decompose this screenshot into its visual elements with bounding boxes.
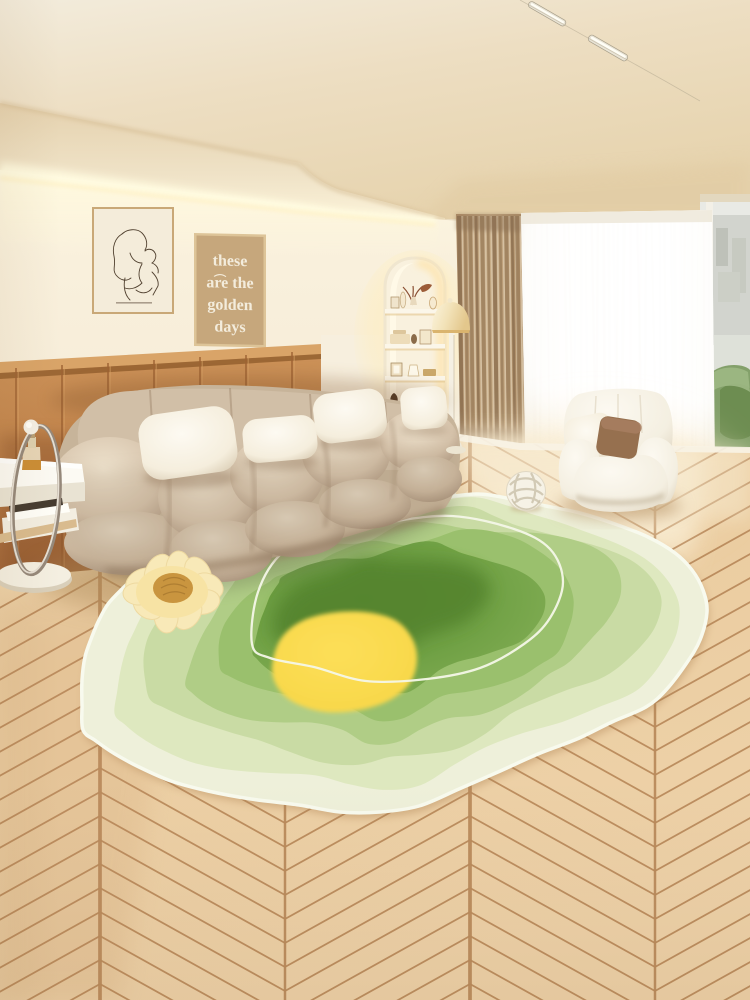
- svg-text:these: these: [213, 252, 248, 270]
- svg-text:days: days: [214, 318, 245, 336]
- svg-text:are the: are the: [206, 274, 253, 292]
- svg-text:golden: golden: [207, 296, 252, 314]
